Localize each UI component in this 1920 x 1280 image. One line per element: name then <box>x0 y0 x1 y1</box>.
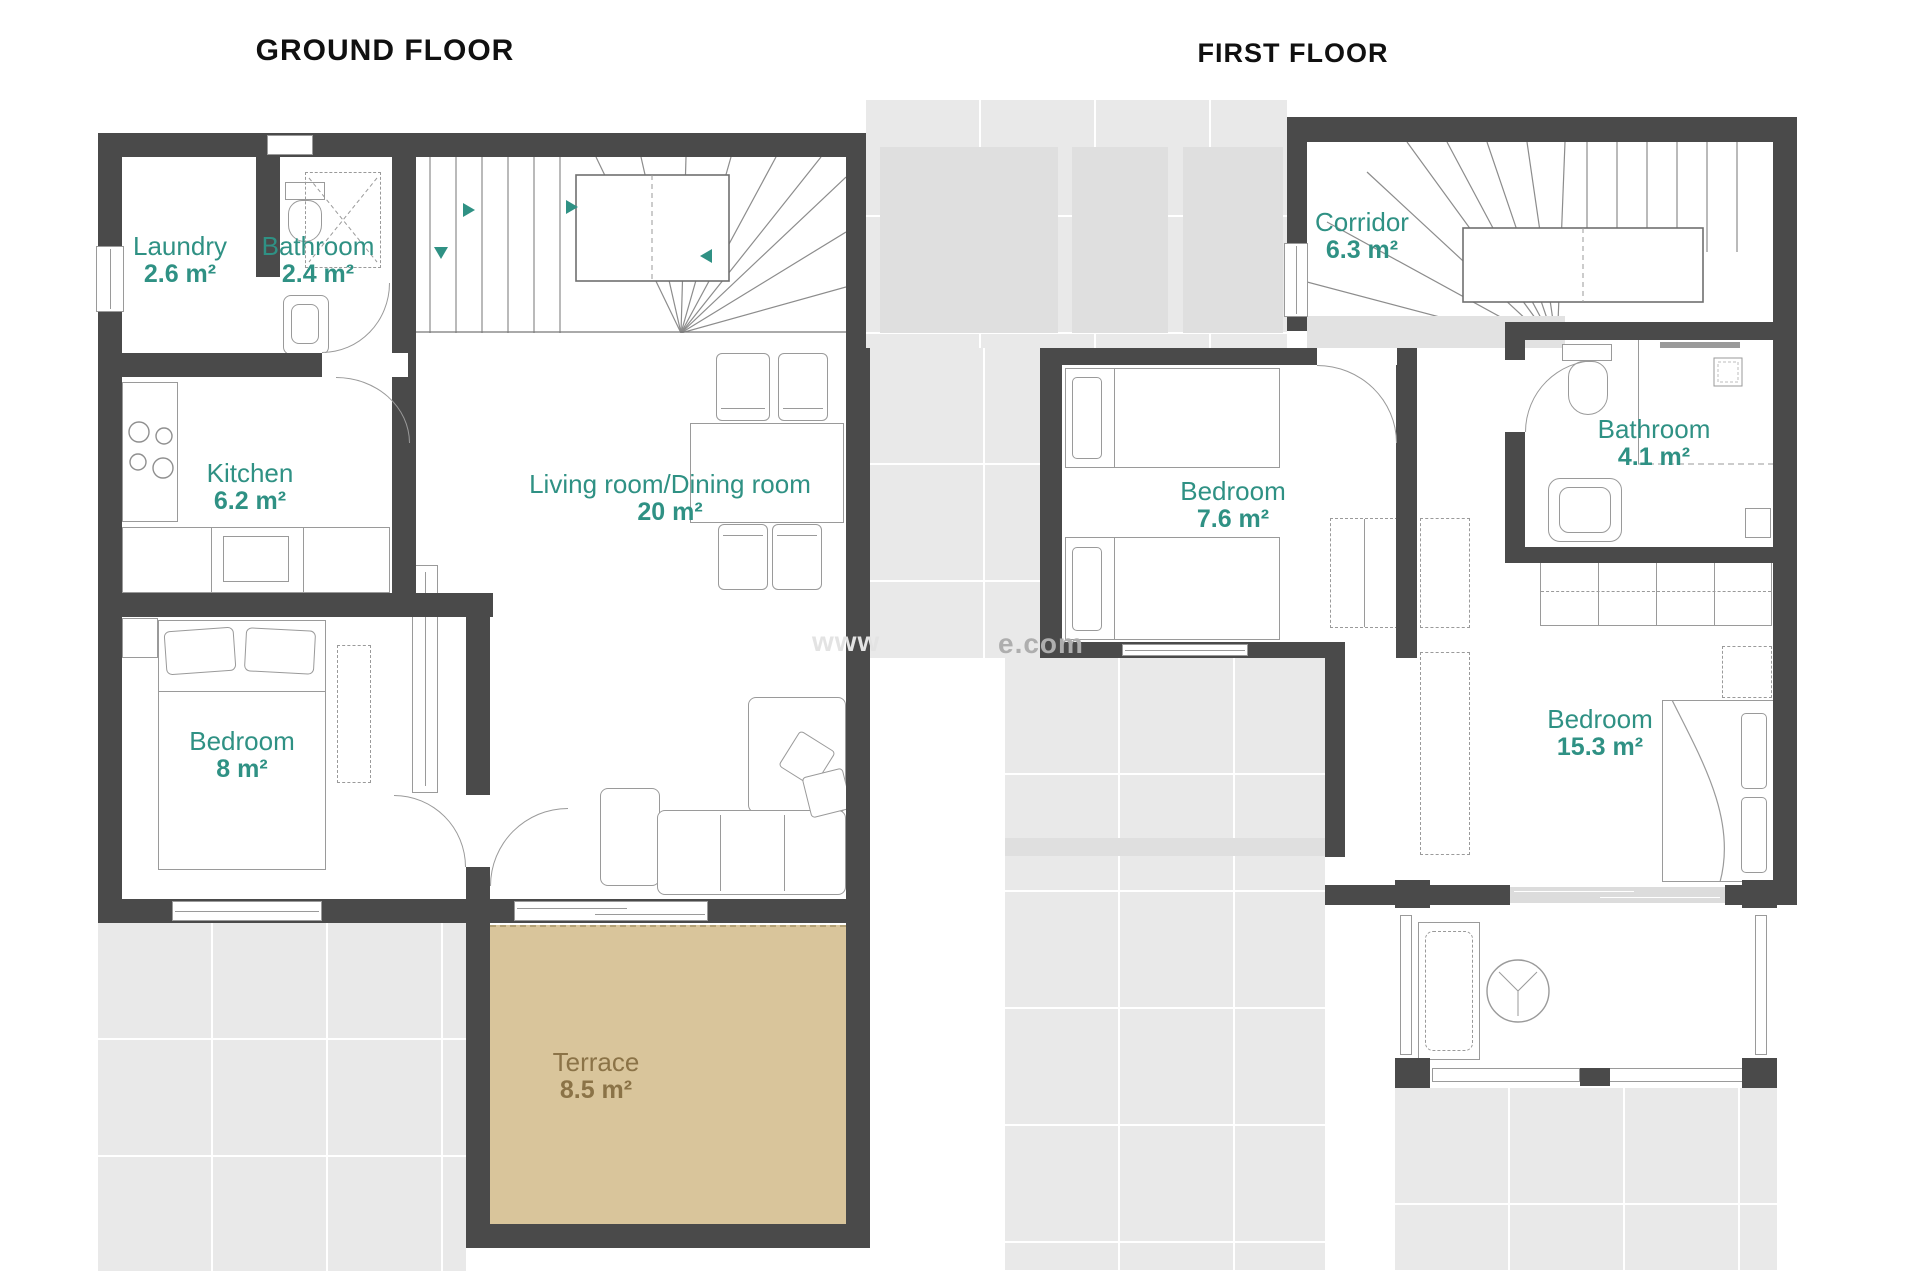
wall <box>1505 547 1773 563</box>
wardrobe <box>1330 518 1398 628</box>
first-floor-plan: FIRST FLOOR <box>0 0 1920 1280</box>
watermark-right: e.com <box>998 628 1084 660</box>
room-label-corridor: Corridor 6.3 m² <box>1282 208 1442 264</box>
room-area: 6.3 m² <box>1282 237 1442 264</box>
cabinet <box>1745 508 1771 538</box>
room-area: 4.1 m² <box>1574 444 1734 471</box>
roof-area <box>870 348 1040 658</box>
balcony-pillar <box>1580 1068 1610 1086</box>
pillow <box>1072 377 1102 459</box>
wall <box>1325 658 1345 857</box>
watermark-left: www <box>812 626 880 658</box>
window <box>1122 644 1248 656</box>
roof-area <box>1005 658 1325 1270</box>
sink <box>1548 478 1622 542</box>
toilet-tank <box>1562 344 1612 361</box>
floor-plan-canvas: GROUND FLOOR <box>0 0 1920 1280</box>
room-name: Bathroom <box>1574 415 1734 444</box>
room-label-bedroom-1: Bedroom 7.6 m² <box>1153 477 1313 533</box>
wardrobe <box>1420 652 1470 855</box>
wall <box>1396 365 1417 658</box>
railing <box>1608 1068 1748 1082</box>
single-bed <box>1065 368 1280 468</box>
balcony-pillar <box>1395 880 1430 908</box>
room-area: 15.3 m² <box>1520 734 1680 761</box>
roof-step <box>1005 838 1325 856</box>
wall <box>1773 117 1797 905</box>
balcony-pillar <box>1742 880 1777 908</box>
room-name: Corridor <box>1282 208 1442 237</box>
door-arc <box>1317 365 1397 443</box>
door-opening <box>1505 360 1525 432</box>
roof-area <box>1395 1088 1777 1270</box>
pillow <box>1072 547 1102 631</box>
room-name: Bedroom <box>1153 477 1313 506</box>
first-floor-title: FIRST FLOOR <box>1163 38 1423 69</box>
room-name: Bedroom <box>1520 705 1680 734</box>
wall <box>1505 322 1797 340</box>
room-area: 7.6 m² <box>1153 506 1313 533</box>
dresser <box>1420 518 1470 628</box>
roof-panel <box>1183 147 1283 333</box>
wall <box>1040 348 1062 658</box>
balcony-pillar <box>1742 1058 1777 1088</box>
wall <box>1505 322 1525 555</box>
shelf <box>1660 342 1740 348</box>
sliding-door <box>1510 887 1725 903</box>
sun-lounger <box>1418 922 1480 1060</box>
roof-panel <box>880 147 1058 333</box>
room-label-bedroom-2: Bedroom 15.3 m² <box>1520 705 1680 761</box>
balcony-pillar <box>1395 1058 1430 1088</box>
railing <box>1432 1068 1580 1082</box>
wardrobe <box>1540 558 1772 626</box>
round-table <box>1485 958 1551 1024</box>
single-bed <box>1065 537 1280 640</box>
railing <box>1400 915 1412 1055</box>
railing <box>1755 915 1767 1055</box>
nightstand <box>1722 646 1772 698</box>
roof-panel <box>1072 147 1168 333</box>
wall <box>1287 117 1797 142</box>
room-label-bathroom-ff: Bathroom 4.1 m² <box>1574 415 1734 471</box>
door-opening <box>1317 348 1397 365</box>
